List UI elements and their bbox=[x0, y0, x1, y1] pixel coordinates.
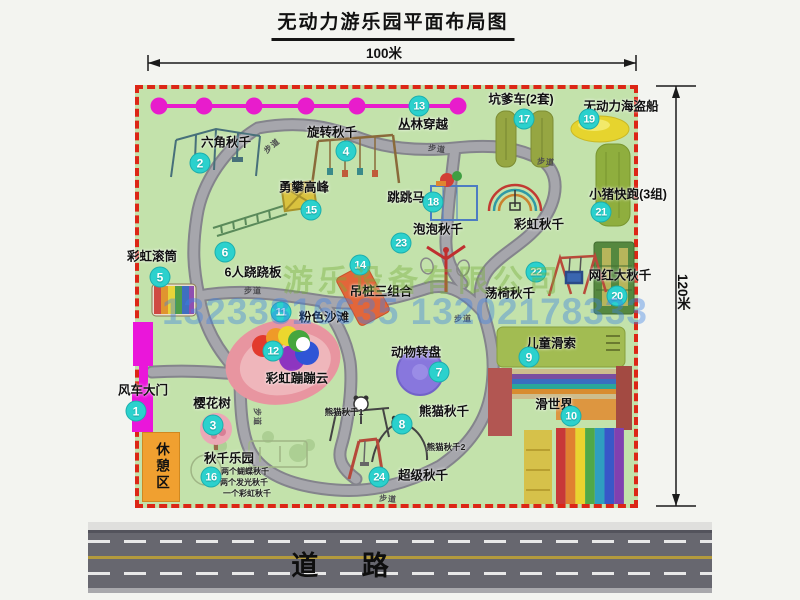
attraction-label-24: 超级秋千 bbox=[398, 465, 448, 484]
attraction-label-12: 彩虹蹦蹦云 bbox=[266, 368, 329, 387]
attraction-badge-18: 18 bbox=[423, 192, 444, 213]
attraction-label-18: 跳跳马 bbox=[387, 187, 425, 206]
attraction-label-20: 网红大秋千 bbox=[589, 265, 652, 284]
trail-label-2: 步道 bbox=[427, 142, 446, 155]
page-title: 无动力游乐园平面布局图 bbox=[271, 7, 514, 41]
attraction-label-11: 粉色沙滩 bbox=[299, 307, 349, 326]
attraction-label-16: 秋千乐园 bbox=[204, 448, 254, 467]
attraction-label-14: 吊桩三组合 bbox=[350, 281, 413, 300]
rest-area-label: 休憩区 bbox=[151, 442, 171, 492]
attraction-badge-22: 22 bbox=[526, 262, 547, 283]
attraction-label-22: 荡椅秋千 bbox=[485, 283, 535, 302]
trail-label-6: 步道 bbox=[454, 314, 472, 325]
trail-label-7: 步道 bbox=[379, 493, 398, 506]
attraction-badge-14: 14 bbox=[350, 255, 371, 276]
attraction-label-2: 六角秋千 bbox=[201, 132, 251, 151]
attraction-badge-19: 19 bbox=[579, 109, 600, 130]
attraction-label-1: 风车大门 bbox=[118, 380, 168, 399]
trail-label-5: 步道 bbox=[252, 408, 263, 426]
attraction-badge-23: 23 bbox=[391, 233, 412, 254]
swing-park-note-3: 一个彩虹秋千 bbox=[223, 488, 271, 499]
park-map-screenshot: 无动力游乐园平面布局图 100米 120米 休憩区 bbox=[0, 0, 800, 600]
attraction-label-6: 6人跷跷板 bbox=[225, 262, 282, 281]
attraction-badge-21: 21 bbox=[591, 202, 612, 223]
rainbow-swing-arcs bbox=[489, 185, 541, 211]
attraction-label-3: 樱花树 bbox=[193, 393, 231, 412]
rainbow-roller bbox=[152, 284, 196, 316]
attraction-badge-5: 5 bbox=[150, 267, 171, 288]
attraction-badge-8: 8 bbox=[392, 414, 413, 435]
attraction-badge-4: 4 bbox=[336, 141, 357, 162]
slide-world bbox=[488, 366, 632, 506]
attraction-badge-15: 15 bbox=[301, 200, 322, 221]
attraction-label-23: 泡泡秋千 bbox=[413, 219, 463, 238]
swing-park-note-2: 两个发光秋千 bbox=[220, 477, 268, 488]
width-dimension-label: 100米 bbox=[366, 42, 402, 62]
rainbow-swing-label: 彩虹秋千 bbox=[514, 214, 564, 233]
attraction-badge-13: 13 bbox=[409, 96, 430, 117]
attraction-badge-16: 16 bbox=[201, 467, 222, 488]
attraction-label-15: 勇攀高峰 bbox=[279, 177, 329, 196]
attraction-label-13: 丛林穿越 bbox=[398, 114, 448, 133]
attraction-badge-3: 3 bbox=[203, 415, 224, 436]
trail-label-4: 步道 bbox=[244, 286, 262, 297]
attraction-badge-17: 17 bbox=[514, 109, 535, 130]
attraction-badge-11: 11 bbox=[271, 302, 292, 323]
attraction-badge-1: 1 bbox=[126, 401, 147, 422]
attraction-label-8: 熊猫秋千 bbox=[419, 401, 469, 420]
swing-park-note-1: 两个蝴蝶秋千 bbox=[221, 466, 269, 477]
attraction-badge-12: 12 bbox=[263, 341, 284, 362]
attraction-badge-10: 10 bbox=[561, 406, 582, 427]
panda-swing-2-label: 熊猫秋千2 bbox=[427, 441, 466, 453]
attraction-badge-20: 20 bbox=[607, 286, 628, 307]
attraction-label-21: 小猪快跑(3组) bbox=[589, 184, 667, 203]
attraction-badge-2: 2 bbox=[190, 153, 211, 174]
panda-swing-1-label: 熊猫秋千1 bbox=[325, 406, 364, 418]
attraction-label-5: 彩虹滚筒 bbox=[127, 246, 177, 265]
attraction-label-17: 坑爹车(2套) bbox=[488, 89, 553, 108]
attraction-badge-9: 9 bbox=[519, 347, 540, 368]
rest-area: 休憩区 bbox=[142, 432, 180, 502]
attraction-label-7: 动物转盘 bbox=[391, 342, 441, 361]
trail-label-3: 步道 bbox=[537, 156, 556, 169]
attraction-badge-7: 7 bbox=[429, 362, 450, 383]
attraction-badge-24: 24 bbox=[369, 467, 390, 488]
height-dimension-label: 120米 bbox=[672, 274, 692, 310]
attraction-badge-6: 6 bbox=[215, 242, 236, 263]
attraction-label-4: 旋转秋千 bbox=[307, 122, 357, 141]
